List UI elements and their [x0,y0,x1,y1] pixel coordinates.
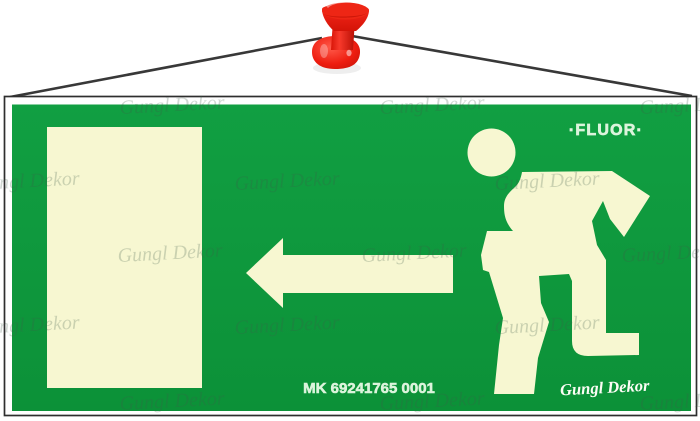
svg-text:Gungl Dekor: Gungl Dekor [639,92,700,119]
svg-text:·FLUOR·: ·FLUOR· [569,122,643,139]
svg-text:Gungl Dekor: Gungl Dekor [621,240,700,267]
svg-text:Gungl Dekor: Gungl Dekor [639,388,700,415]
